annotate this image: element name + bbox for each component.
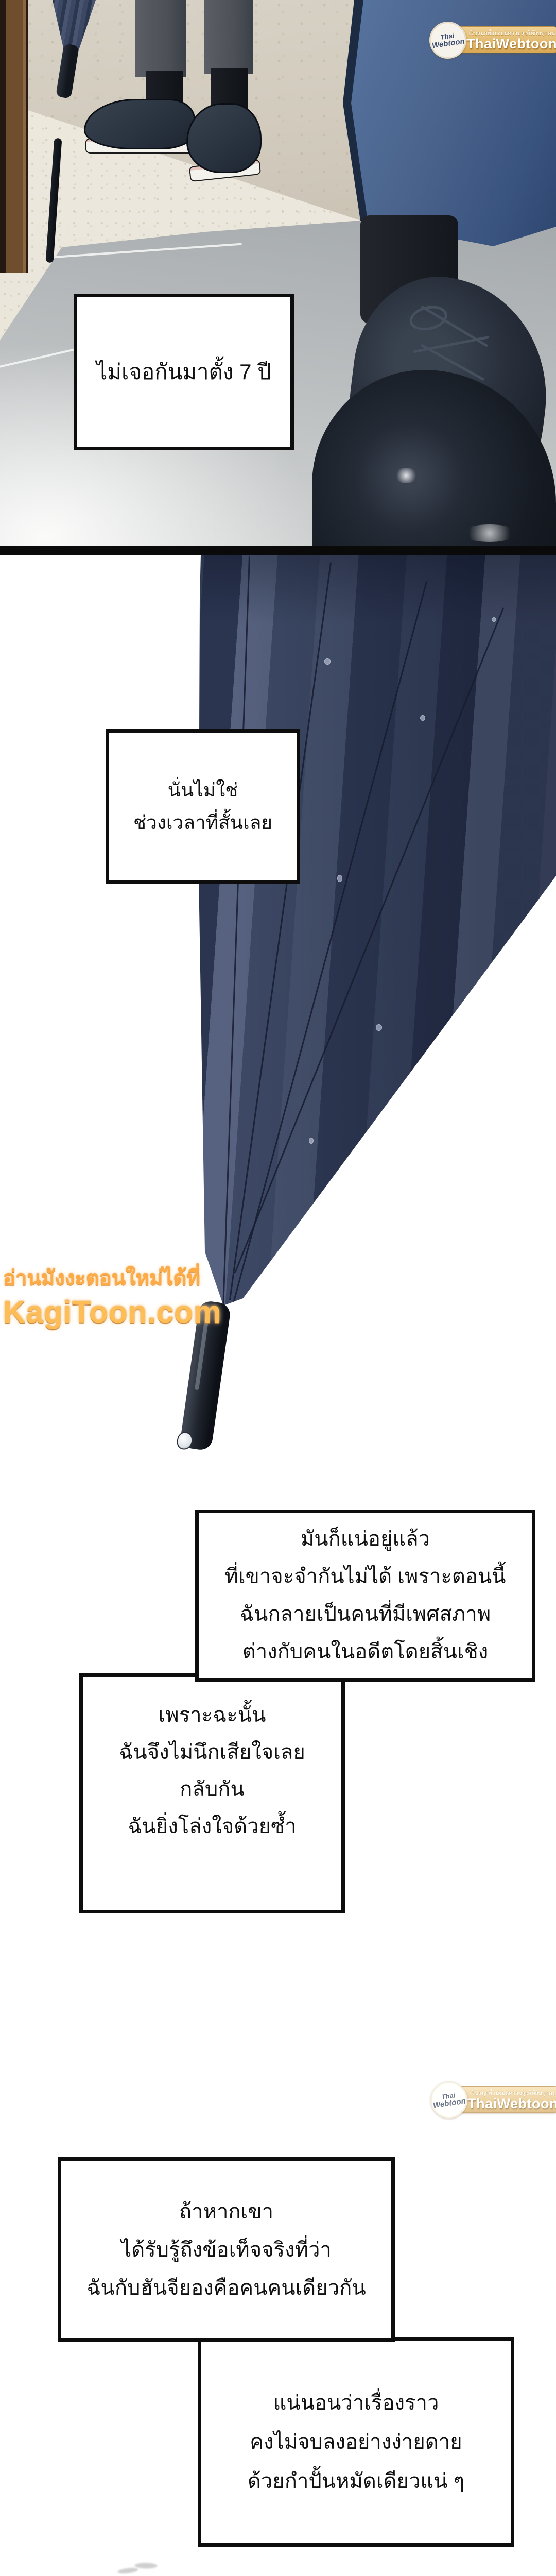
raindrop (324, 658, 331, 665)
panel-divider (0, 546, 556, 555)
watermark-brand: ThaiWebtoon (467, 2096, 556, 2112)
trouser-leg (135, 0, 186, 77)
narration-box-1: มันก็แน่อยู่แล้ว ที่เขาจะจำกันไม่ได้ เพร… (195, 1510, 535, 1682)
dialog-line: เพราะฉะนั้น (159, 1697, 266, 1734)
dialog-line: ช่วงเวลาที่สั้นเลย (133, 807, 272, 839)
shoe-lace-loop (407, 302, 449, 334)
thaiwebtoon-logo-icon: Thai Webtoon (428, 2079, 470, 2121)
water-droplet (176, 1431, 194, 1451)
raindrop (492, 617, 496, 622)
shoe-highlight (461, 524, 518, 542)
raindrop (466, 1163, 473, 1170)
dialog-line: แน่นอนว่าเรื่องราว (273, 2383, 439, 2422)
dialog-line: ไม่เจอกันมาตั้ง 7 ปี (96, 355, 271, 389)
webtoon-page: { "dialog": { "bubble1": { "text": "ไม่เ… (0, 0, 556, 2576)
panel-doorway-scene: ไม่เจอกันมาตั้ง 7 ปี Thai Webtoon เว็บสน… (0, 0, 556, 546)
trouser-leg (204, 0, 253, 74)
dialog-line: ฉันกลายเป็นคนที่มีเพศสภาพ (240, 1596, 491, 1633)
dialog-line: ที่เขาจะจำกันไม่ได้ เพราะตอนนี้ (224, 1558, 506, 1596)
raindrop (286, 1246, 290, 1250)
speech-bubble-2: นั่นไม่ใช่ ช่วงเวลาที่สั้นเลย (106, 729, 300, 884)
kagitoon-tagline: อ่านมังงะตอนใหม่ได้ที่ (3, 1261, 178, 1294)
kagitoon-url: KagiToon.com (3, 1294, 178, 1330)
thaiwebtoon-watermark: Thai Webtoon เว็บสนุกที่แบ่งปันความสุขให… (429, 22, 556, 58)
umbrella-canopy-illustration (0, 555, 556, 1323)
raindrop (443, 1096, 448, 1101)
logo-text: Webtoon (431, 37, 465, 49)
slip-on-shoe (186, 103, 262, 173)
dialog-line: นั่นไม่ใช่ (168, 774, 238, 807)
narration-box-3: ถ้าหากเขา ได้รับรู้ถึงข้อเท็จจริงที่ว่า … (58, 2157, 395, 2342)
slip-on-shoe (84, 99, 195, 149)
dialog-line: คงไม่จบลงอย่างง่ายดาย (250, 2422, 462, 2462)
umbrella-rib (232, 581, 427, 1307)
raindrop (337, 875, 342, 882)
distant-bird-smudge (116, 2558, 161, 2576)
dialog-line: ถ้าหากเขา (179, 2193, 273, 2231)
thaiwebtoon-logo-icon: Thai Webtoon (427, 19, 468, 61)
umbrella-rib (234, 607, 504, 1273)
dialog-line: ได้รับรู้ถึงข้อเท็จจริงที่ว่า (121, 2231, 332, 2269)
dialog-line: ด้วยกำปั้นหมัดเดียวแน่ ๆ (248, 2462, 464, 2501)
dialog-line: ต่างกับคนในอดีตโดยสิ้นเชิง (242, 1633, 489, 1671)
raindrop (376, 1024, 382, 1031)
door-frame (0, 0, 28, 273)
logo-text: Webtoon (432, 2097, 466, 2109)
dialog-line: ฉันยิ่งโล่งใจด้วยซ้ำ (128, 1808, 297, 1845)
dialog-line: มันก็แน่อยู่แล้ว (301, 1520, 430, 1558)
kagitoon-watermark: อ่านมังงะตอนใหม่ได้ที่ KagiToon.com (3, 1261, 178, 1330)
watermark-brand: ThaiWebtoon (466, 36, 555, 52)
dialog-line: กลับกัน (180, 1771, 245, 1808)
umbrella-rib (222, 556, 250, 1309)
raindrop (420, 715, 425, 721)
speech-bubble-1: ไม่เจอกันมาตั้ง 7 ปี (74, 294, 294, 450)
narration-box-2: เพราะฉะนั้น ฉันจึงไม่นึกเสียใจเลย กลับกั… (79, 1673, 345, 1913)
raindrop (396, 1194, 402, 1200)
thaiwebtoon-watermark-mid: Thai Webtoon เว็บสนุกที่แบ่งปันความสุขให… (430, 2081, 556, 2117)
raindrop (515, 988, 519, 993)
narration-box-4: แน่นอนว่าเรื่องราว คงไม่จบลงอย่างง่ายดาย… (198, 2337, 514, 2547)
shoe-lace (413, 336, 489, 353)
dialog-line: ฉันกับฮันจียองคือคนคนเดียวกัน (86, 2269, 366, 2307)
raindrop (309, 1138, 314, 1144)
dialog-line: ฉันจึงไม่นึกเสียใจเลย (119, 1734, 305, 1771)
shoe-highlight (394, 468, 418, 483)
